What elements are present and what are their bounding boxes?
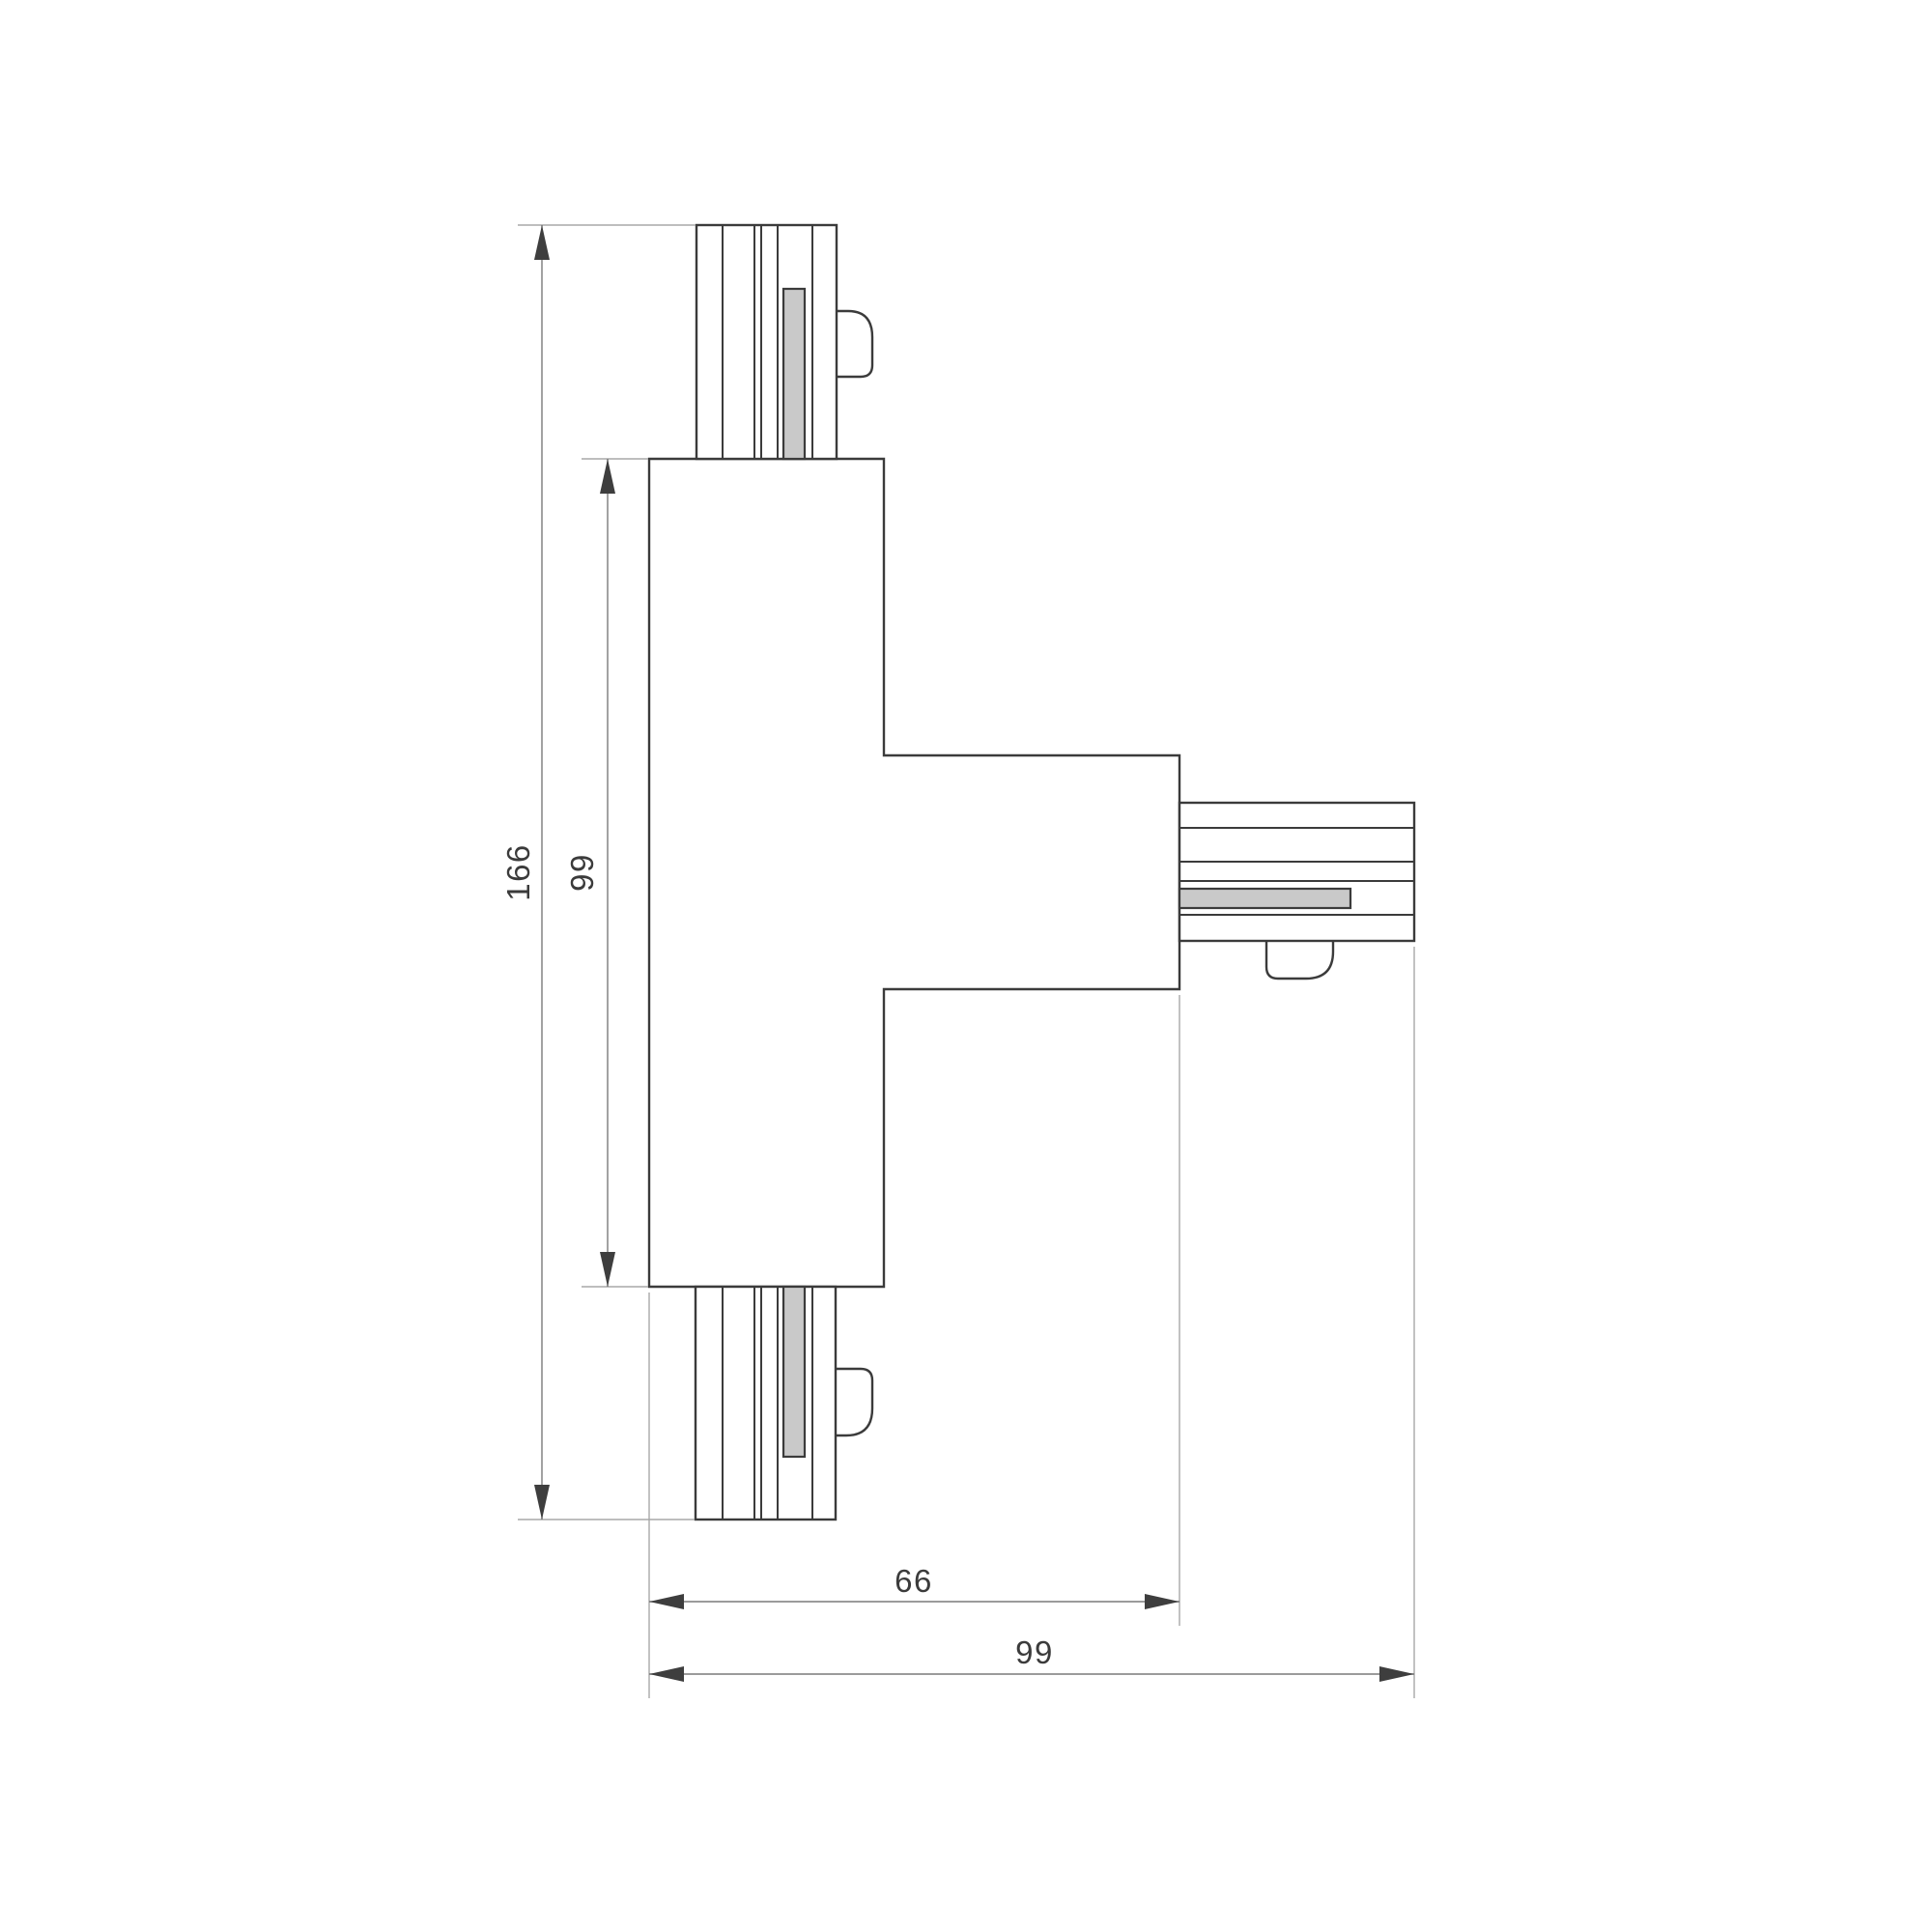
right-connector bbox=[1179, 803, 1414, 979]
dimension-body-height: 99 bbox=[564, 459, 648, 1287]
dimension-label-overall-width: 99 bbox=[1015, 1634, 1054, 1670]
right-connector-housing bbox=[1179, 803, 1414, 941]
dimension-width-to-arm-end: 66 bbox=[649, 1563, 1179, 1609]
top-connector bbox=[696, 225, 872, 459]
bottom-connector-housing bbox=[696, 1287, 836, 1520]
bottom-connector-contact-bar bbox=[783, 1287, 805, 1457]
arrowhead-left bbox=[649, 1666, 684, 1682]
top-connector-contact-bar bbox=[783, 289, 805, 459]
latch-tab-right bbox=[1266, 941, 1333, 979]
right-connector-contact-bar bbox=[1179, 889, 1350, 908]
t-connector-part bbox=[649, 225, 1414, 1520]
technical-drawing: 166 99 66 99 bbox=[0, 0, 1932, 1932]
arrowhead-down bbox=[600, 1252, 615, 1287]
dimension-label-overall-height: 166 bbox=[500, 843, 536, 901]
bottom-connector bbox=[696, 1287, 872, 1520]
arrowhead-right bbox=[1379, 1666, 1414, 1682]
dimension-label-body-height: 99 bbox=[564, 853, 600, 892]
latch-tab-top bbox=[837, 311, 872, 377]
dimension-label-width-66: 66 bbox=[895, 1563, 933, 1599]
dimension-overall-width: 99 bbox=[649, 1634, 1414, 1682]
latch-tab-bottom bbox=[836, 1369, 872, 1435]
arrowhead-right bbox=[1145, 1594, 1179, 1609]
t-body-outline bbox=[649, 459, 1179, 1287]
top-connector-housing bbox=[696, 225, 837, 459]
drawing-canvas: 166 99 66 99 bbox=[0, 0, 1932, 1932]
arrowhead-up bbox=[600, 459, 615, 494]
arrowhead-up bbox=[534, 225, 550, 260]
arrowhead-left bbox=[649, 1594, 684, 1609]
arrowhead-down bbox=[534, 1485, 550, 1520]
